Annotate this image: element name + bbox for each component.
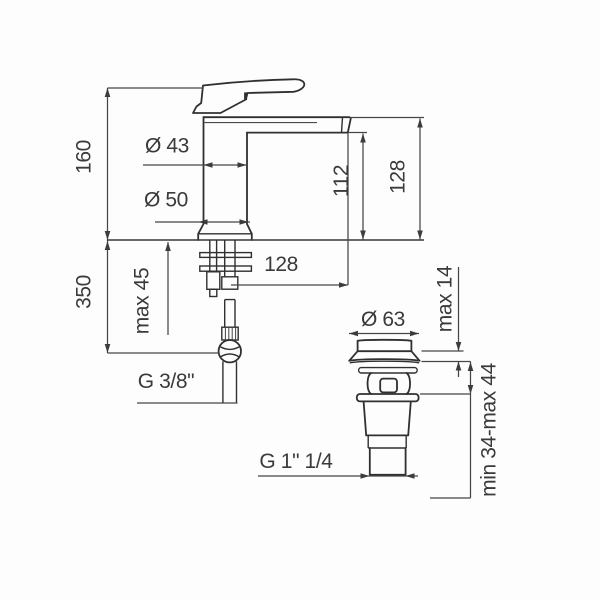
dim-label-g114: G 1" 1/4 — [259, 450, 333, 473]
spout-end-inner-line — [342, 117, 343, 132]
waste-cap-rim-underside — [350, 361, 419, 363]
dim-label-350: 350 — [72, 275, 95, 309]
stud-nut — [207, 272, 220, 290]
waste-overflow-window — [380, 379, 397, 393]
dim-arrow — [417, 119, 423, 128]
dim-arrow — [456, 362, 462, 371]
dim-arrow — [204, 162, 213, 168]
dim-arrow — [360, 134, 366, 143]
dim-label-112: 112 — [330, 165, 353, 197]
dimension-labels: 160 350 max 45 Ø 43 Ø 50 112 128 128 G 3… — [72, 135, 500, 497]
dim-arrow — [238, 162, 247, 168]
dim-arrow — [417, 231, 423, 240]
dim-label-dia50: Ø 50 — [144, 189, 188, 212]
supply-hose-lower — [225, 300, 235, 328]
dim-label-160: 160 — [72, 140, 95, 174]
threaded-stud — [210, 240, 217, 272]
faucet-technical-drawing: 160 350 max 45 Ø 43 Ø 50 112 128 128 G 3… — [0, 0, 600, 600]
dim-label-max14: max 14 — [433, 265, 456, 332]
dim-label-clamp-range: min 34-max 44 — [477, 362, 500, 496]
dim-arrow — [360, 231, 366, 240]
dim-arrow — [410, 331, 419, 337]
faucet-handle — [193, 79, 304, 113]
dim-arrow — [105, 344, 111, 353]
waste-spool-body — [368, 373, 411, 394]
waste-threaded-tail — [370, 448, 406, 475]
dim-arrow — [349, 331, 358, 337]
dim-label-128-reach: 128 — [264, 253, 298, 276]
hose-end-pipe — [223, 362, 237, 404]
technical-drawing-page: 160 350 max 45 Ø 43 Ø 50 112 128 128 G 3… — [0, 0, 600, 600]
dim-label-128-vertical: 128 — [386, 160, 409, 194]
dim-arrow — [339, 282, 348, 288]
hose-ball-detail — [220, 346, 240, 357]
dim-arrow — [406, 473, 415, 479]
hose-crimp-hatching — [225, 327, 235, 340]
waste-cap — [358, 340, 412, 351]
hose-nut — [222, 277, 238, 289]
mounting-washer-lower — [200, 266, 252, 271]
dim-arrow — [468, 385, 474, 394]
dim-label-g38: G 3/8" — [138, 370, 194, 393]
waste-seal-washer — [359, 368, 418, 373]
mounting-washer-upper — [200, 253, 252, 258]
dim-arrow — [105, 241, 111, 250]
waste-cap-rim — [349, 351, 419, 361]
dim-arrow — [361, 473, 370, 479]
waste-lower-body — [364, 401, 411, 435]
dim-arrow — [105, 231, 111, 240]
dim-arrow — [468, 362, 474, 371]
dim-label-dia43: Ø 43 — [145, 135, 189, 158]
dim-arrow — [105, 88, 111, 97]
dim-label-dia63: Ø 63 — [361, 308, 405, 331]
faucet-drawing — [108, 79, 425, 403]
stud-nut-tip — [210, 289, 217, 296]
dim-arrow — [456, 342, 462, 351]
waste-drawing — [349, 340, 419, 475]
waste-ring-step — [368, 435, 406, 448]
faucet-spout — [204, 117, 351, 132]
dim-label-max45: max 45 — [130, 268, 153, 334]
waste-flange — [357, 394, 419, 401]
dim-arrow — [165, 242, 171, 251]
hose-ball-end — [219, 340, 241, 362]
